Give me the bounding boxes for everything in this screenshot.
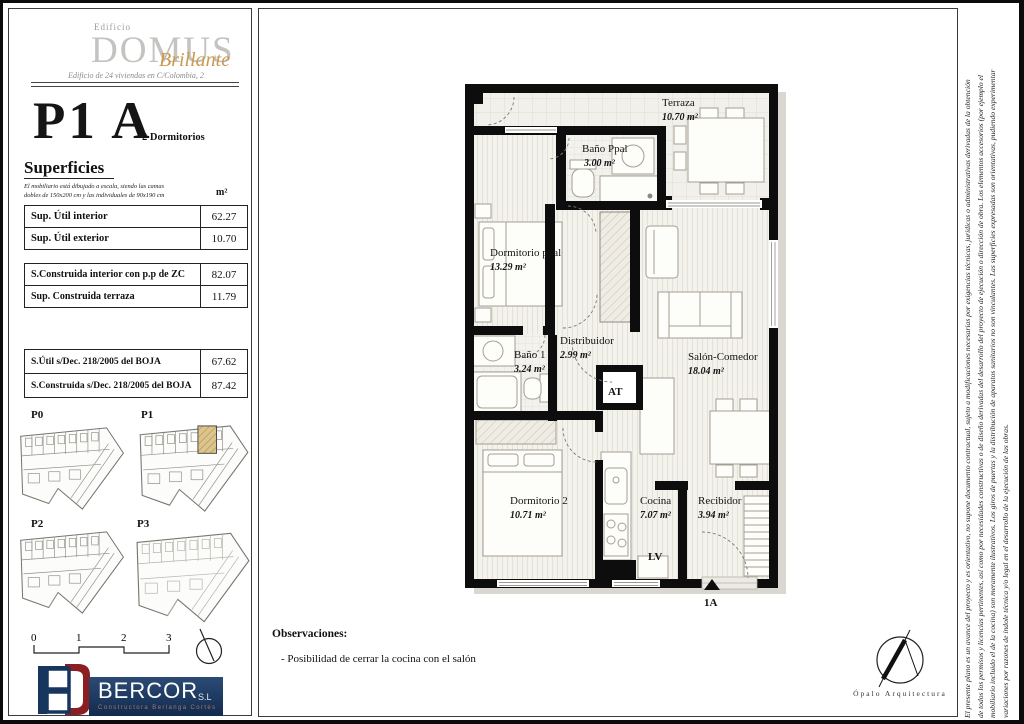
legal-disclaimer: El presente plano es un avance del proye…	[962, 6, 1016, 718]
row-label: S.Construida interior con p.p de ZC	[25, 264, 200, 285]
page-border-right	[1019, 0, 1024, 724]
disclaimer-line: de todos los permisos y licencias pertin…	[975, 6, 988, 718]
scale-tick-0: 0	[31, 632, 37, 644]
floorplan-thumbnail-p2	[17, 527, 129, 617]
row-label: Sup. Construida terraza	[25, 286, 200, 307]
room-area: 13.29 m²	[490, 262, 527, 273]
opalo-arquitectura-logo: Ópalo Arquitectura	[852, 628, 952, 702]
table-row: S.Construida s/Dec. 218/2005 del BOJA 87…	[25, 374, 247, 397]
table-row: S.Útil s/Dec. 218/2005 del BOJA 67.62	[25, 350, 247, 374]
row-value: 62.27	[200, 206, 247, 227]
building-subtitle: Brillante	[159, 49, 230, 72]
room-name: Baño 1	[514, 349, 545, 361]
room-name: Recibidor	[698, 495, 742, 507]
hall-closet	[744, 496, 770, 576]
logo-a-thick-stroke	[883, 640, 905, 679]
room-name: Salón-Comedor	[688, 351, 758, 363]
table-row: S.Construida interior con p.p de ZC 82.0…	[25, 264, 247, 286]
header-divider	[31, 82, 239, 87]
shaft-label: AT	[608, 386, 623, 398]
room-area: 2.99 m²	[559, 350, 592, 361]
opalo-name: Ópalo Arquitectura	[853, 688, 947, 698]
scale-tick-2: 2	[121, 632, 127, 644]
logo-a-thin-stroke	[905, 640, 918, 676]
bercor-tagline: Constructora Berlanga Cortés	[98, 705, 217, 711]
row-value: 82.07	[200, 264, 247, 285]
bercor-banner: BERCOR S.L Constructora Berlanga Cortés	[89, 677, 223, 716]
furniture-note-line2: dobles de 150x200 cm y las individuales …	[24, 192, 164, 199]
page-border-top	[0, 0, 1024, 3]
surface-table-construida: S.Construida interior con p.p de ZC 82.0…	[24, 263, 248, 308]
row-value: 11.79	[200, 286, 247, 307]
entrance-label: 1A	[704, 597, 718, 609]
room-name: Cocina	[640, 495, 671, 507]
room-area: 3.24 m²	[513, 364, 546, 375]
floorplan-thumbnail-p1	[135, 423, 255, 513]
room-area: 3.00 m²	[583, 158, 616, 169]
scale-bar: 0 1 2 3	[27, 629, 187, 661]
bercor-name: BERCOR	[98, 678, 198, 704]
row-label: S.Construida s/Dec. 218/2005 del BOJA	[25, 374, 200, 397]
room-name: Distribuidor	[560, 335, 614, 347]
building-tagline: Edificio de 24 viviendas en C/Colombia, …	[33, 71, 239, 80]
room-name: Dormitorio ppal	[490, 247, 561, 259]
washer-label: LV	[648, 551, 662, 563]
bercor-suffix: S.L	[198, 692, 212, 702]
floorplan-thumbnail-p3	[133, 529, 255, 625]
room-area: 10.71 m²	[510, 510, 547, 521]
disclaimer-line: mobiliario incluido el de la cocina) son…	[987, 6, 1000, 718]
logo-a-extension2	[879, 679, 883, 687]
room-area: 18.04 m²	[688, 366, 725, 377]
furniture-note-line1: El mobiliario está dibujado a escala, si…	[24, 183, 164, 190]
bercor-emblem-icon	[35, 662, 93, 718]
thumb-label-p0: P0	[31, 409, 43, 421]
disclaimer-line: El presente plano es un avance del proye…	[962, 6, 975, 718]
wardrobe	[600, 212, 632, 322]
superficies-heading: Superficies	[24, 158, 114, 179]
row-label: S.Útil s/Dec. 218/2005 del BOJA	[25, 350, 200, 373]
row-label: Sup. Útil exterior	[25, 228, 200, 249]
room-name: Terraza	[662, 97, 695, 109]
north-compass-icon	[187, 622, 233, 672]
row-label: Sup. Útil interior	[25, 206, 200, 227]
observations-heading: Observaciones:	[272, 628, 347, 640]
room-area: 10.70 m²	[662, 112, 699, 123]
floor-plan: Terraza 10.70 m² Baño Ppal 3.00 m² Dormi…	[258, 8, 956, 715]
thumb-label-p1: P1	[141, 409, 153, 421]
room-name: Baño Ppal	[582, 143, 628, 155]
info-panel: Edificio DOMUS Brillante Edificio de 24 …	[8, 8, 252, 716]
surface-table-util: Sup. Útil interior 62.27 Sup. Útil exter…	[24, 205, 248, 250]
page-border-left	[0, 0, 3, 724]
room-area: 7.07 m²	[640, 510, 672, 521]
table-row: Sup. Útil interior 62.27	[25, 206, 247, 228]
table-row: Sup. Construida terraza 11.79	[25, 286, 247, 307]
scale-tick-1: 1	[76, 632, 82, 644]
plan-sheet: Edificio DOMUS Brillante Edificio de 24 …	[0, 0, 1024, 724]
table-row: Sup. Útil exterior 10.70	[25, 228, 247, 249]
m2-column-header: m²	[216, 187, 227, 198]
unit-code: P1 A	[33, 91, 152, 151]
scale-tick-3: 3	[166, 632, 172, 644]
surface-table-boja: S.Útil s/Dec. 218/2005 del BOJA 67.62 S.…	[24, 349, 248, 398]
room-name: Dormitorio 2	[510, 495, 568, 507]
highlighted-unit-marker	[198, 426, 217, 453]
disclaimer-line: variaciones por razones de índole técnic…	[1000, 6, 1013, 718]
floorplan-thumbnail-p0	[17, 425, 129, 511]
observations-item: - Posibilidad de cerrar la cocina con el…	[281, 653, 476, 665]
unit-type: 2 Dormitorios	[142, 132, 205, 143]
page-border-bottom	[0, 720, 1024, 724]
row-value: 67.62	[200, 350, 247, 373]
row-value: 87.42	[200, 374, 247, 397]
room-area: 3.94 m²	[697, 510, 730, 521]
bedroom2-furniture	[476, 420, 562, 556]
row-value: 10.70	[200, 228, 247, 249]
